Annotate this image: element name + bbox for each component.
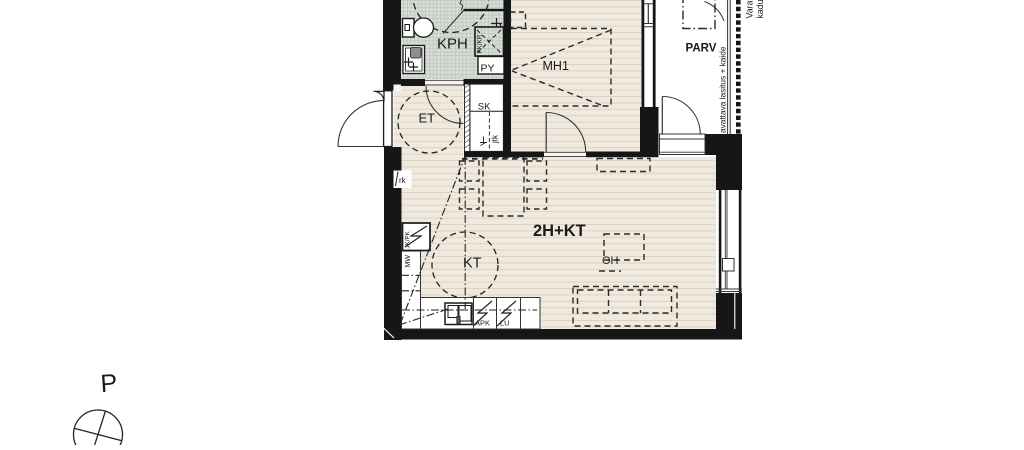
svg-text:APK: APK: [475, 319, 490, 328]
svg-text:PARV: PARV: [686, 43, 717, 55]
svg-text:OH: OH: [602, 255, 619, 267]
svg-text:MH1: MH1: [543, 59, 569, 73]
svg-text:P: P: [100, 369, 119, 398]
svg-text:2H+KT: 2H+KT: [533, 222, 586, 240]
svg-text:SK: SK: [478, 102, 491, 113]
svg-text:KPH: KPH: [437, 36, 468, 53]
svg-text:LU: LU: [500, 319, 510, 328]
svg-text:rk: rk: [399, 176, 407, 185]
svg-text:PY: PY: [481, 63, 495, 75]
svg-text:ET: ET: [419, 111, 436, 126]
svg-text:MW: MW: [405, 255, 412, 268]
svg-text:Varatie: Varatie: [745, 0, 755, 19]
svg-text:PK/KR: PK/KR: [477, 34, 484, 53]
svg-text:JK/PK: JK/PK: [405, 230, 412, 248]
svg-text:kadulle: kadulle: [755, 0, 765, 19]
svg-text:avattava lasitus + kaide: avattava lasitus + kaide: [718, 46, 728, 133]
svg-text:jtk: jtk: [491, 134, 500, 144]
svg-text:KT: KT: [463, 256, 482, 272]
